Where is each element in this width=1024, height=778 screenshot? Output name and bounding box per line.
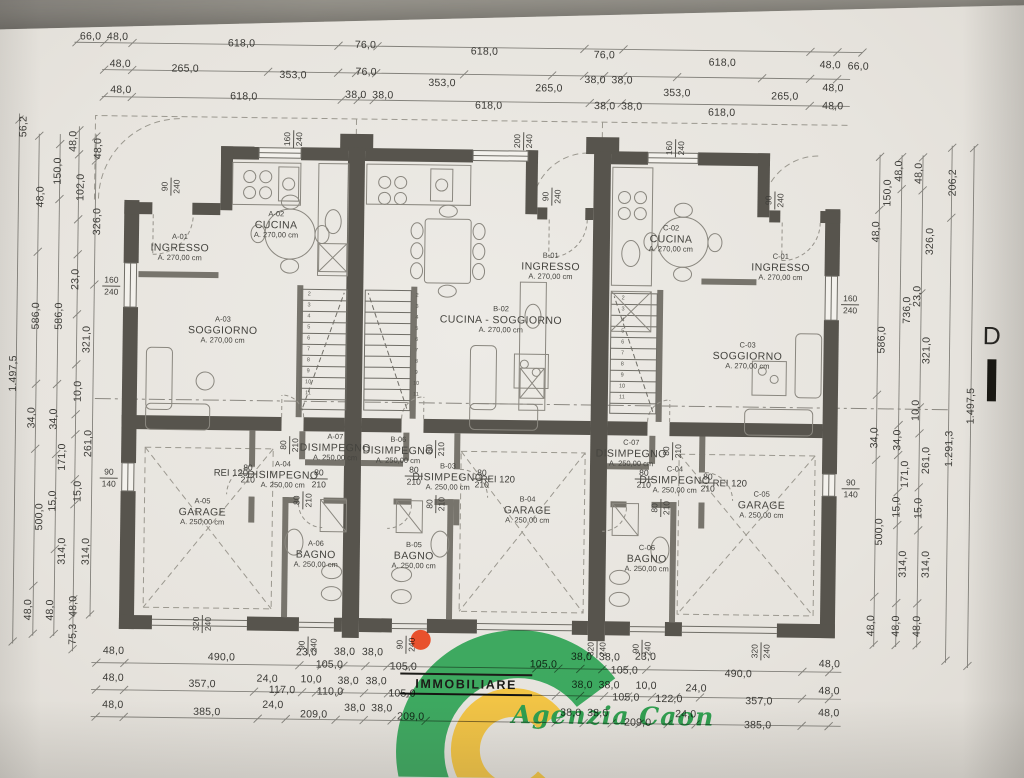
windows-layer [120,146,839,634]
section-marker-bar [987,359,997,401]
floorplan-content: A-01INGRESSOA. 270,00 cmA-02CUCINAA. 270… [0,0,1024,778]
floorplan-drawing [0,0,1024,778]
section-marker-letter: D [983,322,1001,351]
partitions-layer [134,271,756,623]
furniture-layer [143,161,824,609]
door-swings-layer [149,214,820,534]
photo-of-floorplan: A-01INGRESSOA. 270,00 cmA-02CUCINAA. 270… [0,0,1024,778]
walls-layer [119,131,842,644]
section-marker-d: D [982,322,1001,401]
